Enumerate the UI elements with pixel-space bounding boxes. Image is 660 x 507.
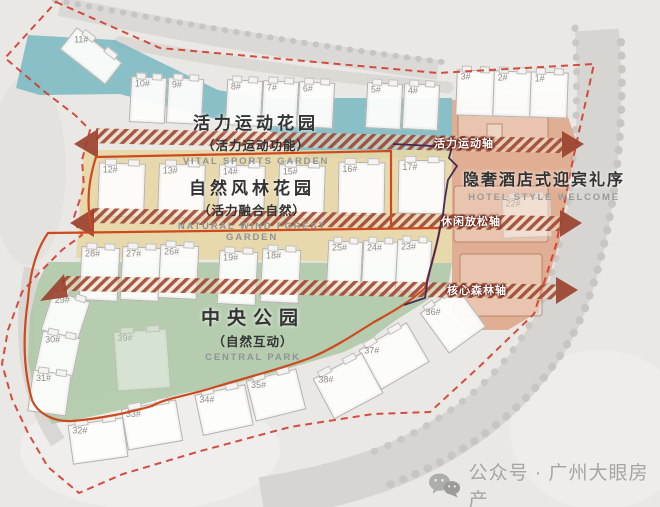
zone-subtitle: （活力运动功能）	[168, 135, 344, 154]
building-label: 10#	[135, 79, 150, 89]
watermark-text: 公众号 · 广州大眼房产	[469, 458, 660, 507]
building-label: 6#	[303, 84, 313, 94]
building-12: 12#	[97, 162, 146, 218]
building-label: 31#	[36, 373, 51, 383]
building-35: 35#	[246, 368, 307, 421]
building-label: 2#	[498, 73, 508, 83]
building-19: 19#	[217, 250, 259, 306]
building-label: 4#	[408, 86, 418, 96]
building-label: 38#	[318, 375, 333, 385]
zone-title-en: VITAL SPORTS GARDEN	[168, 156, 344, 167]
building-label: 27#	[126, 249, 141, 259]
building-label: 37#	[364, 345, 379, 355]
building-1: 1#	[529, 71, 569, 118]
axis-label-forest: 核心森林轴	[447, 282, 507, 298]
building-label: 19#	[223, 253, 238, 263]
zone-title: 中央公园	[188, 303, 318, 330]
zone-title: 活力运动花园	[168, 109, 344, 134]
building-31: 31#	[27, 369, 71, 416]
zone-title-en: HOTEL STYLE WELCOME	[456, 192, 632, 203]
building-11: 11#	[60, 27, 123, 85]
building-label: 11#	[74, 35, 88, 45]
building-label: 25#	[332, 243, 347, 253]
zone-title: 自然风林花园	[160, 174, 344, 199]
building-label: 23#	[401, 242, 416, 252]
building-label: 5#	[371, 85, 381, 95]
building-label: 39#	[117, 333, 132, 343]
building-18: 18#	[260, 248, 302, 304]
building-3: 3#	[455, 69, 495, 116]
building-16: 16#	[338, 162, 386, 217]
building-39: 39#	[113, 328, 171, 392]
building-label: 7#	[267, 83, 277, 93]
building-26: 26#	[158, 244, 200, 300]
building-25: 25#	[326, 240, 364, 294]
building-label: 1#	[535, 74, 545, 84]
watermark: 公众号 · 广州大眼房产	[428, 458, 660, 507]
building-5: 5#	[365, 82, 403, 130]
building-label: 32#	[72, 425, 87, 435]
building-label: 24#	[367, 243, 382, 253]
building-24: 24#	[361, 240, 399, 294]
zone-title-en: NATURAL WIND FOREST GARDEN	[160, 221, 344, 243]
zone-title-en: CENTRAL PARK	[188, 352, 318, 363]
building-label: 17#	[402, 162, 417, 172]
building-28: 28#	[79, 246, 121, 302]
building-label: 36#	[426, 307, 441, 317]
building-10: 10#	[129, 76, 167, 124]
zone-label-vital-sports: 活力运动花园 （活力运动功能） VITAL SPORTS GARDEN	[168, 109, 344, 167]
building-34: 34#	[194, 384, 254, 436]
building-33: 33#	[121, 399, 183, 450]
building-32: 32#	[67, 417, 128, 464]
zone-subtitle: （活力融合自然）	[160, 200, 344, 219]
building-label: 29#	[55, 295, 70, 305]
wechat-icon	[428, 472, 461, 498]
building-label: 34#	[199, 394, 214, 404]
building-2: 2#	[492, 70, 532, 117]
zone-title: 隐奢酒店式迎宾礼序	[456, 166, 632, 190]
building-label: 8#	[231, 82, 241, 92]
zone-label-central-park: 中央公园 （自然互动） CENTRAL PARK	[188, 303, 318, 363]
building-label: 16#	[342, 164, 357, 174]
zone-label-hotel-welcome: 隐奢酒店式迎宾礼序 HOTEL STYLE WELCOME	[456, 166, 632, 203]
building-27: 27#	[120, 246, 162, 302]
building-17: 17#	[398, 160, 446, 215]
building-label: 3#	[461, 72, 471, 82]
building-label: 30#	[45, 335, 60, 345]
axis-label-sports: 活力运动轴	[434, 135, 494, 151]
building-label: 26#	[164, 247, 179, 257]
building-4: 4#	[402, 83, 440, 131]
building-label: 9#	[172, 80, 182, 90]
axis-label-leisure: 休闲放松轴	[441, 213, 501, 229]
building-23: 23#	[395, 239, 433, 293]
building-label: 33#	[126, 409, 141, 419]
site-plan: 11#10#9#8#7#6#5#4#3#2#1#12#13#14#15#16#1…	[0, 0, 660, 507]
building-label: 18#	[266, 251, 281, 261]
building-label: 35#	[251, 380, 266, 390]
zone-subtitle: （自然互动）	[188, 331, 318, 350]
zone-label-forest-garden: 自然风林花园 （活力融合自然） NATURAL WIND FOREST GARD…	[160, 174, 344, 243]
building-label: 12#	[103, 165, 118, 175]
buildings-layer: 11#10#9#8#7#6#5#4#3#2#1#12#13#14#15#16#1…	[0, 0, 660, 507]
building-label: 28#	[85, 249, 100, 259]
